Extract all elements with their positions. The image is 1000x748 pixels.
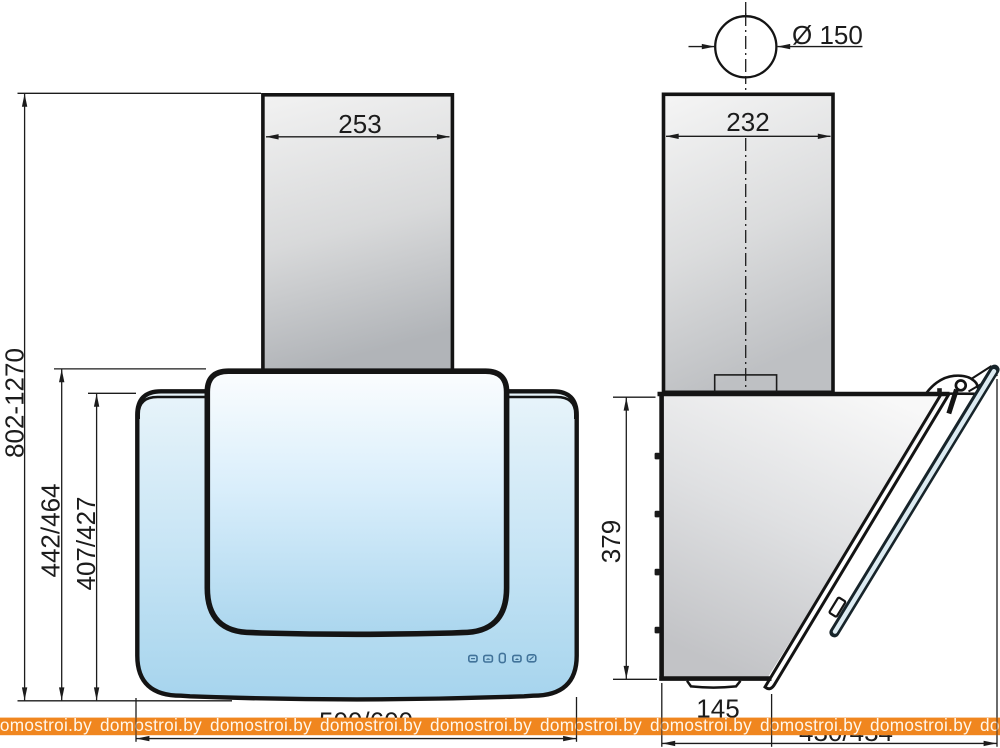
svg-text:379: 379 <box>596 520 626 563</box>
svg-text:253: 253 <box>338 109 381 139</box>
svg-text:domostroi.by: domostroi.by <box>320 715 422 735</box>
svg-text:domostroi.by: domostroi.by <box>870 715 972 735</box>
svg-text:802-1270: 802-1270 <box>0 348 30 458</box>
svg-text:domostroi.by: domostroi.by <box>760 715 862 735</box>
svg-text:442/464: 442/464 <box>36 484 66 578</box>
svg-text:domostroi.by: domostroi.by <box>100 715 202 735</box>
svg-text:domostroi.by: domostroi.by <box>540 715 642 735</box>
svg-text:domostroi.by: domostroi.by <box>0 715 92 735</box>
svg-text:domostroi.by: domostroi.by <box>210 715 312 735</box>
svg-text:407/427: 407/427 <box>71 497 101 591</box>
svg-text:232: 232 <box>726 107 769 137</box>
svg-text:domostroi.by: domostroi.by <box>430 715 532 735</box>
svg-text:domostroi.by: domostroi.by <box>650 715 752 735</box>
svg-text:Ø 150: Ø 150 <box>792 20 863 50</box>
